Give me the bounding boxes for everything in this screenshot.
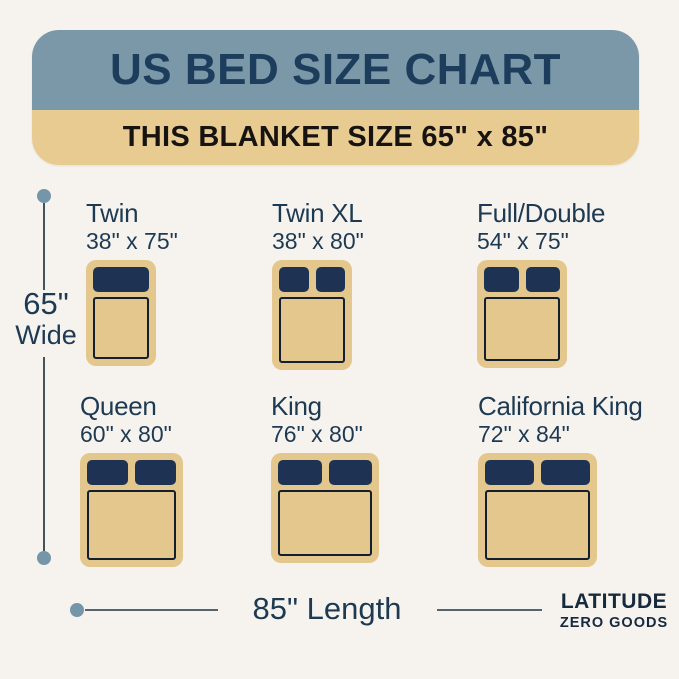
bed-illustration-king [271, 453, 379, 563]
bed-illustration-full-double [477, 260, 567, 368]
pillow-icon [484, 267, 519, 292]
mattress-body [87, 490, 176, 560]
pillow-icon [329, 460, 373, 485]
page-title: US BED SIZE CHART [110, 45, 561, 95]
bed-size: 38" x 80" [272, 228, 364, 255]
pillow-row [484, 267, 560, 292]
pillow-icon [135, 460, 176, 485]
bed-card-full-double: Full/Double 54" x 75" [477, 198, 605, 368]
width-dimension-line-top [43, 203, 45, 290]
width-value: 65" [0, 288, 92, 321]
bed-size: 76" x 80" [271, 421, 379, 448]
pillow-row [87, 460, 176, 485]
pillow-row [279, 267, 345, 292]
header-banner: US BED SIZE CHART THIS BLANKET SIZE 65" … [32, 30, 639, 165]
bed-illustration-twin [86, 260, 156, 366]
brand-name: LATITUDE [558, 590, 670, 614]
bed-card-queen: Queen 60" x 80" [80, 391, 183, 567]
bed-illustration-queen [80, 453, 183, 567]
pillow-row [278, 460, 372, 485]
bed-card-california-king: California King 72" x 84" [478, 391, 643, 567]
pillow-icon [279, 267, 309, 292]
bed-size: 38" x 75" [86, 228, 178, 255]
blanket-size-bar: THIS BLANKET SIZE 65" x 85" [32, 110, 639, 165]
pillow-icon [485, 460, 534, 485]
length-dimension-dot-left [70, 603, 84, 617]
title-bar: US BED SIZE CHART [32, 30, 639, 110]
width-dimension-label: 65" Wide [0, 288, 92, 349]
bed-card-twin-xl: Twin XL 38" x 80" [272, 198, 364, 370]
width-dimension-dot-top [37, 189, 51, 203]
pillow-icon [541, 460, 590, 485]
bed-name: Full/Double [477, 198, 605, 228]
bed-illustration-california-king [478, 453, 597, 567]
bed-size: 54" x 75" [477, 228, 605, 255]
width-dimension-line-bottom [43, 357, 45, 551]
length-dimension-label: 85" Length [224, 591, 430, 627]
mattress-body [279, 297, 345, 363]
brand-logo: LATITUDE ZERO GOODS [558, 590, 670, 631]
brand-tagline: ZERO GOODS [558, 615, 670, 631]
pillow-icon [526, 267, 561, 292]
pillow-row [485, 460, 590, 485]
bed-name: Queen [80, 391, 183, 421]
pillow-icon [87, 460, 128, 485]
bed-card-king: King 76" x 80" [271, 391, 379, 563]
bed-name: California King [478, 391, 643, 421]
mattress-body [484, 297, 560, 361]
length-dimension-line-right [437, 609, 542, 611]
bed-illustration-twin-xl [272, 260, 352, 370]
bed-name: King [271, 391, 379, 421]
bed-size: 72" x 84" [478, 421, 643, 448]
bed-name: Twin XL [272, 198, 364, 228]
pillow-row [93, 267, 149, 292]
length-dimension-line-left [85, 609, 218, 611]
mattress-body [485, 490, 590, 560]
pillow-icon [278, 460, 322, 485]
width-dimension-dot-bottom [37, 551, 51, 565]
mattress-body [93, 297, 149, 359]
bed-size: 60" x 80" [80, 421, 183, 448]
width-unit-label: Wide [0, 321, 92, 349]
bed-size-chart: US BED SIZE CHART THIS BLANKET SIZE 65" … [0, 0, 679, 679]
bed-card-twin: Twin 38" x 75" [86, 198, 178, 366]
blanket-size-label: THIS BLANKET SIZE 65" x 85" [123, 121, 549, 154]
pillow-icon [93, 267, 149, 292]
bed-name: Twin [86, 198, 178, 228]
pillow-icon [316, 267, 346, 292]
mattress-body [278, 490, 372, 556]
